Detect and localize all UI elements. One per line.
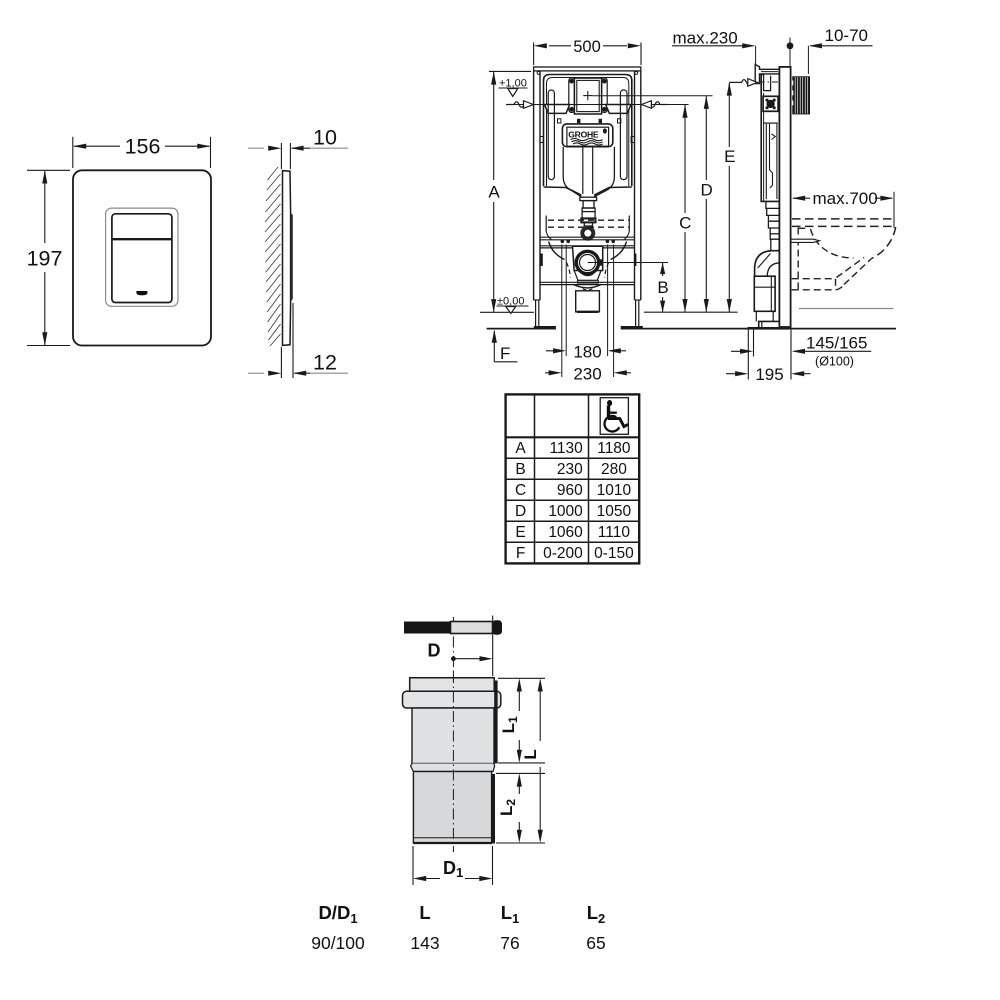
svg-text:F: F — [500, 344, 510, 363]
svg-text:10-70: 10-70 — [825, 26, 868, 45]
svg-text:D: D — [700, 180, 712, 199]
svg-text:76: 76 — [500, 933, 519, 953]
svg-text:L: L — [521, 749, 540, 759]
svg-text:GROHE: GROHE — [568, 129, 599, 139]
svg-text:960: 960 — [557, 482, 583, 499]
svg-text:0-200: 0-200 — [543, 545, 583, 562]
svg-text:C: C — [515, 482, 526, 499]
svg-text:230: 230 — [557, 461, 583, 478]
svg-text:1000: 1000 — [548, 503, 583, 520]
svg-text:10: 10 — [313, 126, 337, 150]
svg-text:195: 195 — [755, 365, 783, 384]
svg-text:180: 180 — [573, 342, 601, 361]
svg-text:143: 143 — [410, 933, 439, 953]
svg-text:197: 197 — [27, 247, 63, 271]
svg-text:1010: 1010 — [597, 482, 632, 499]
svg-text:B: B — [657, 278, 668, 297]
svg-text:C: C — [679, 213, 691, 232]
svg-text:A: A — [488, 183, 500, 202]
svg-text:1050: 1050 — [597, 503, 632, 520]
svg-text:A: A — [515, 440, 526, 457]
svg-text:max.700: max.700 — [813, 189, 878, 208]
svg-text:D: D — [428, 641, 441, 661]
svg-text:500: 500 — [573, 38, 601, 56]
svg-text:0-150: 0-150 — [594, 545, 634, 562]
svg-text:145/165: 145/165 — [806, 334, 867, 353]
svg-text:B: B — [515, 461, 525, 478]
svg-text:1130: 1130 — [549, 440, 583, 457]
svg-text:65: 65 — [586, 933, 605, 953]
svg-text:1060: 1060 — [548, 524, 583, 541]
svg-text:1110: 1110 — [598, 524, 631, 541]
svg-text:230: 230 — [573, 364, 601, 383]
svg-text:12: 12 — [313, 351, 337, 375]
svg-text:(Ø100): (Ø100) — [815, 354, 854, 368]
svg-text:D: D — [515, 503, 526, 520]
svg-text:F: F — [516, 545, 525, 562]
svg-text:1180: 1180 — [597, 440, 631, 457]
svg-text:E: E — [515, 524, 525, 541]
svg-text:max.230: max.230 — [673, 29, 738, 48]
svg-text:156: 156 — [125, 135, 161, 159]
svg-text:L: L — [419, 902, 430, 923]
svg-text:E: E — [724, 147, 735, 166]
svg-text:280: 280 — [601, 461, 627, 478]
svg-text:90/100: 90/100 — [311, 933, 365, 953]
